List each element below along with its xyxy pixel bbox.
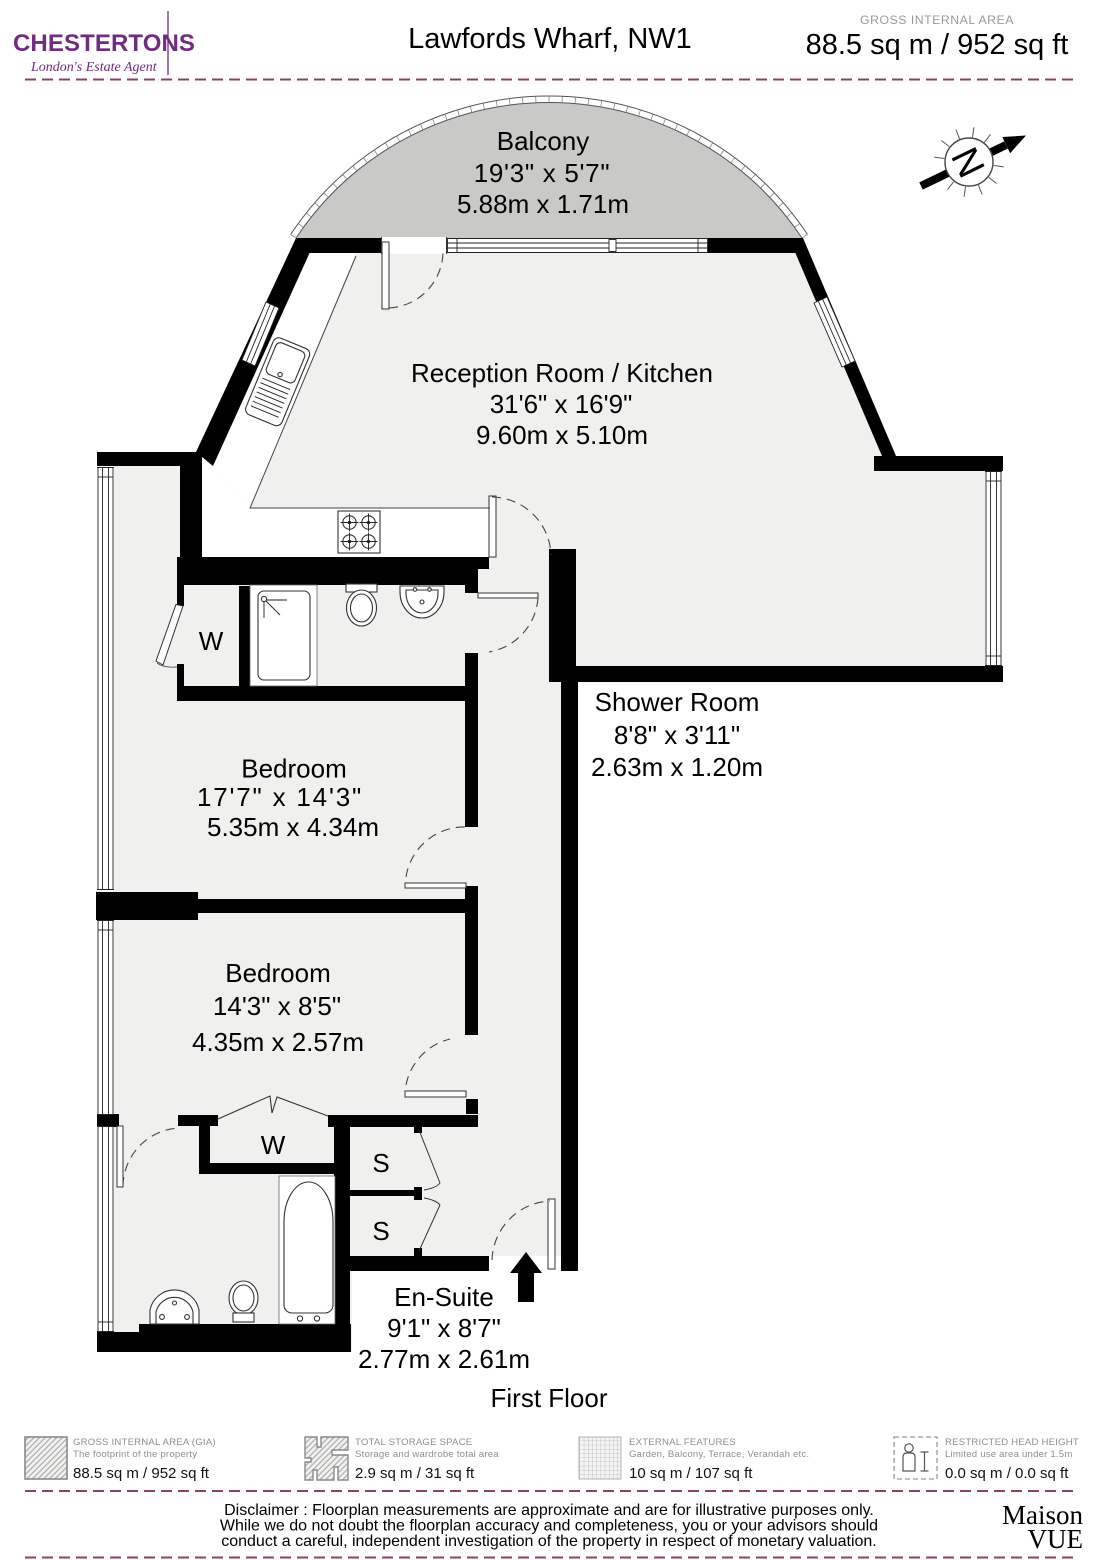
svg-text:Disclaimer : Floorplan measure: Disclaimer : Floorplan measurements are … <box>224 1502 874 1519</box>
svg-text:S: S <box>372 1216 389 1246</box>
svg-text:VUE: VUE <box>1028 1524 1084 1554</box>
svg-text:W: W <box>199 626 224 656</box>
svg-text:Reception Room / Kitchen: Reception Room / Kitchen <box>411 358 713 388</box>
svg-text:9.60m x 5.10m: 9.60m x 5.10m <box>476 420 648 450</box>
svg-text:While we do not doubt the floo: While we do not doubt the floorplan accu… <box>220 1518 878 1535</box>
svg-text:4.35m x 2.57m: 4.35m x 2.57m <box>192 1027 364 1057</box>
svg-text:88.5 sq m / 952 sq ft: 88.5 sq m / 952 sq ft <box>73 1465 210 1482</box>
svg-text:31'6" x 16'9": 31'6" x 16'9" <box>490 389 633 419</box>
svg-text:5.88m x 1.71m: 5.88m x 1.71m <box>457 189 629 219</box>
svg-text:GROSS INTERNAL AREA: GROSS INTERNAL AREA <box>860 13 1014 27</box>
svg-text:17'7" x 14'3": 17'7" x 14'3" <box>197 782 363 812</box>
svg-text:9'1" x 8'7": 9'1" x 8'7" <box>387 1313 501 1343</box>
svg-text:5.35m x 4.34m: 5.35m x 4.34m <box>207 812 379 842</box>
svg-text:0.0 sq m / 0.0 sq ft: 0.0 sq m / 0.0 sq ft <box>945 1465 1069 1482</box>
svg-text:14'3" x 8'5": 14'3" x 8'5" <box>213 991 341 1021</box>
svg-text:Balcony: Balcony <box>497 126 590 156</box>
svg-text:Shower Room: Shower Room <box>595 687 760 717</box>
svg-text:EXTERNAL FEATURES: EXTERNAL FEATURES <box>629 1437 736 1448</box>
svg-text:2.9 sq m / 31 sq ft: 2.9 sq m / 31 sq ft <box>355 1465 475 1482</box>
svg-text:First Floor: First Floor <box>491 1383 608 1413</box>
svg-text:10 sq m / 107 sq ft: 10 sq m / 107 sq ft <box>629 1465 753 1482</box>
svg-text:Storage and wardrobe total are: Storage and wardrobe total area <box>355 1449 499 1460</box>
svg-text:S: S <box>372 1148 389 1178</box>
svg-text:2.63m x 1.20m: 2.63m x 1.20m <box>591 752 763 782</box>
svg-text:2.77m x 2.61m: 2.77m x 2.61m <box>358 1344 530 1374</box>
svg-text:conduct a careful, independent: conduct a careful, independent investiga… <box>221 1533 877 1550</box>
svg-text:W: W <box>261 1130 286 1160</box>
svg-text:Lawfords Wharf, NW1: Lawfords Wharf, NW1 <box>408 23 692 55</box>
svg-text:Garden, Balcony, Terrace, Vera: Garden, Balcony, Terrace, Verandah etc. <box>629 1449 809 1460</box>
svg-text:Limited use area under 1.5m: Limited use area under 1.5m <box>945 1449 1073 1460</box>
svg-text:The footprint of the property: The footprint of the property <box>73 1449 197 1460</box>
svg-text:Bedroom: Bedroom <box>225 958 331 988</box>
svg-text:London's Estate Agent: London's Estate Agent <box>30 60 158 75</box>
svg-text:En-Suite: En-Suite <box>394 1282 494 1312</box>
svg-text:8'8" x 3'11": 8'8" x 3'11" <box>614 720 740 750</box>
svg-text:RESTRICTED HEAD HEIGHT: RESTRICTED HEAD HEIGHT <box>945 1437 1079 1448</box>
svg-text:TOTAL STORAGE SPACE: TOTAL STORAGE SPACE <box>355 1437 472 1448</box>
svg-text:19'3" x 5'7": 19'3" x 5'7" <box>474 158 611 188</box>
svg-text:GROSS INTERNAL AREA (GIA): GROSS INTERNAL AREA (GIA) <box>73 1437 216 1448</box>
svg-text:Bedroom: Bedroom <box>241 754 347 784</box>
svg-text:88.5 sq m / 952 sq ft: 88.5 sq m / 952 sq ft <box>806 29 1069 61</box>
